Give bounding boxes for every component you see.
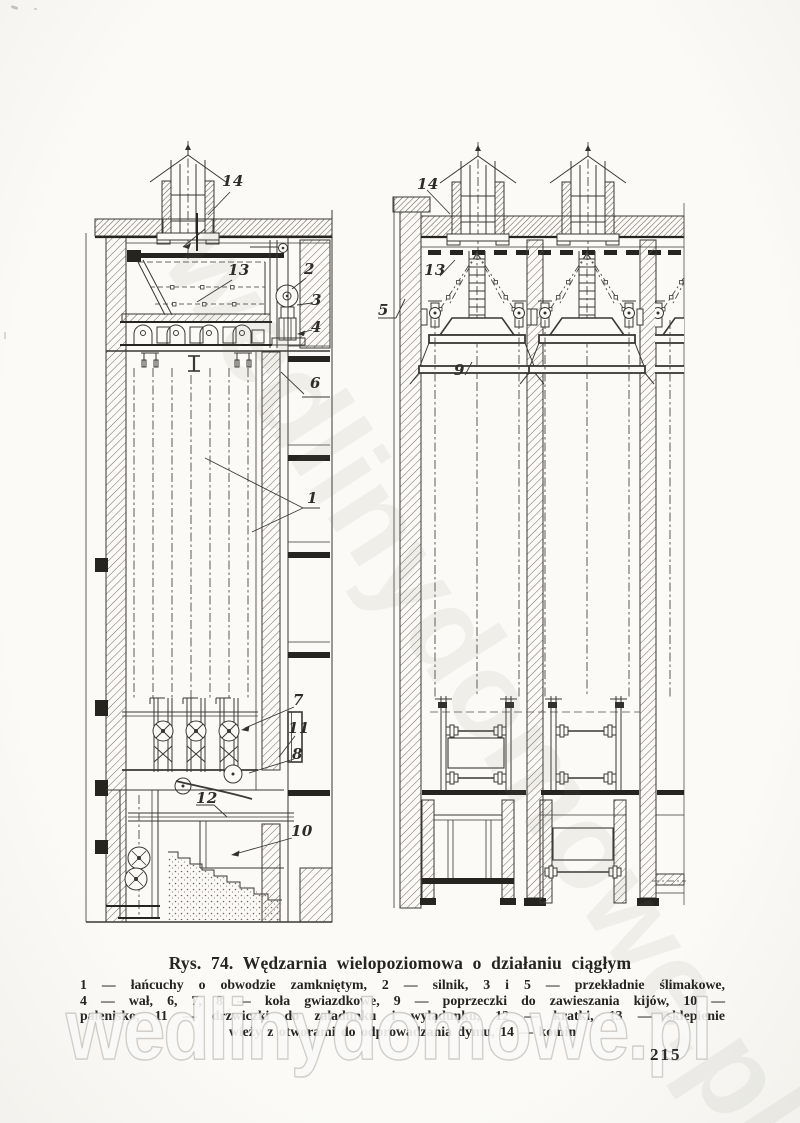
part-label-left-4: 4 [311, 318, 322, 336]
part-label-left-7: 7 [293, 691, 304, 709]
part-label-right-14: 14 [417, 175, 439, 193]
part-label-left-8: 8 [292, 745, 303, 763]
figure-title: Rys. 74. Wędzarnia wielopoziomowa o dzia… [80, 953, 720, 974]
scan-artifact [34, 8, 37, 10]
part-label-left-2: 2 [304, 260, 315, 278]
part-label-left-11: 11 [288, 719, 310, 737]
part-label-left-1: 1 [307, 489, 318, 507]
part-label-right-13: 13 [424, 261, 446, 279]
watermark-bottom: wedlinydomowe.pl [66, 981, 711, 1080]
part-label-left-10: 10 [291, 822, 313, 840]
part-label-left-12: 12 [196, 789, 218, 807]
part-label-left-6: 6 [310, 374, 321, 392]
page-number: 215 [650, 1045, 682, 1065]
part-label-left-13: 13 [228, 261, 250, 279]
scan-artifact [4, 332, 6, 339]
part-label-left-14: 14 [222, 172, 244, 190]
part-label-left-3: 3 [311, 291, 322, 309]
part-label-right-9: 9 [454, 361, 465, 379]
part-label-right-5: 5 [378, 301, 389, 319]
scanned-book-page: wedlinydomowe.pl 14 13 2 3 4 6 1 7 11 8 … [0, 0, 800, 1123]
